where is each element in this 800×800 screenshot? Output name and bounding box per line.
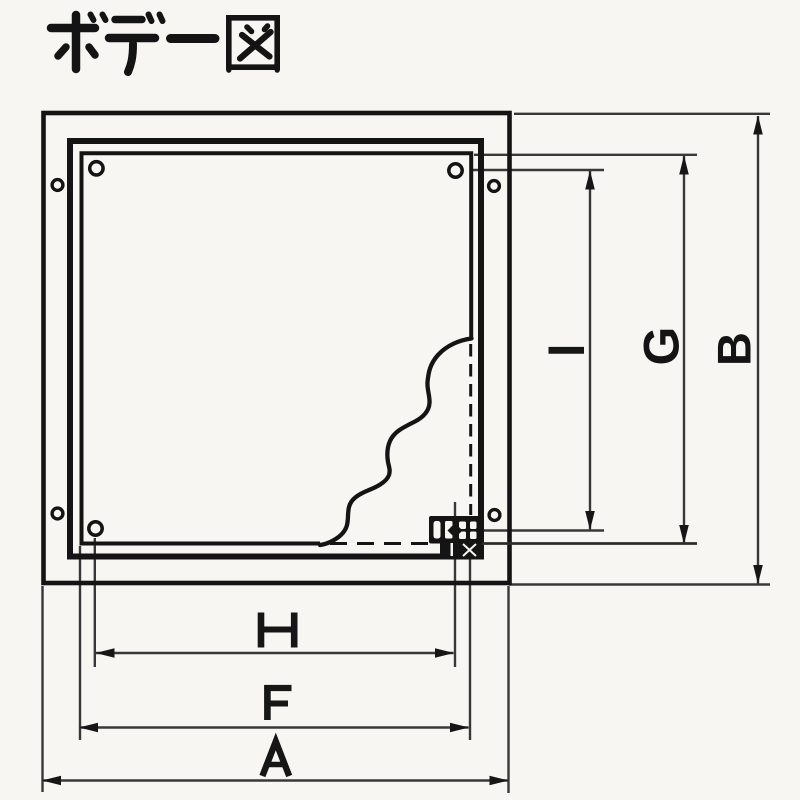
svg-text:G: G <box>634 327 690 366</box>
svg-text:B: B <box>708 332 761 366</box>
